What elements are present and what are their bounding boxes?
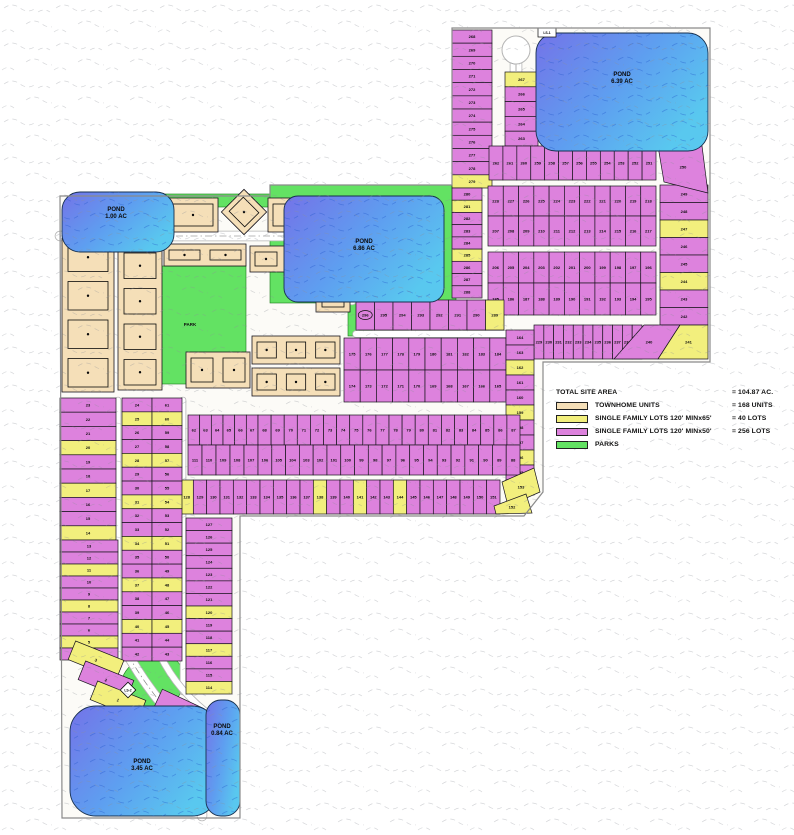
lot-number: 274 <box>469 113 476 118</box>
lot-number: 124 <box>206 560 213 565</box>
lot-number: 292 <box>436 313 443 318</box>
lot-number: 287 <box>464 277 471 282</box>
lot-number: 256 <box>576 161 583 166</box>
lot-number: 37 <box>135 582 140 587</box>
lot-number: 108 <box>234 458 241 463</box>
lot-number: 88 <box>511 458 516 463</box>
lot-number: 24 <box>135 402 140 407</box>
lot-number: 78 <box>393 428 398 433</box>
lot-number: 212 <box>569 229 576 234</box>
lot-number: 205 <box>508 265 515 270</box>
lot-number: 234 <box>585 340 592 345</box>
townhome-unit-dot <box>139 300 141 302</box>
lot-number: 21 <box>86 431 91 436</box>
legend-item: PARKS <box>556 438 794 451</box>
lot-number: 174 <box>349 384 356 389</box>
lot-number: 232 <box>565 340 572 345</box>
lot-number: 182 <box>462 352 469 357</box>
lot-number: 91 <box>470 458 475 463</box>
lot-number: 66 <box>238 428 243 433</box>
lot-number: 131 <box>223 495 230 500</box>
lot-number: 165 <box>495 384 502 389</box>
lot-number: 31 <box>135 499 140 504</box>
pond-084-label: POND0.84 AC <box>211 724 233 737</box>
lot-number: 18 <box>86 474 91 479</box>
townhome-unit-dot <box>295 349 297 351</box>
lot-number: 171 <box>397 384 404 389</box>
lot-number: 177 <box>381 352 388 357</box>
legend-item-label: TOWNHOME UNITS <box>595 402 732 409</box>
lot-number: 228 <box>492 199 499 204</box>
townhome-unit-dot <box>324 349 326 351</box>
lot-number: 141 <box>357 495 364 500</box>
lot-number: 160 <box>517 395 524 400</box>
lot-number: 231 <box>555 340 562 345</box>
lot-number: 276 <box>469 139 476 144</box>
lot-number: 265 <box>518 107 525 112</box>
lot-number: 241 <box>685 340 692 345</box>
site-plan: 2682692702712722732742752762772782792802… <box>0 0 794 835</box>
lot-number: 277 <box>469 153 476 158</box>
lot-number: 270 <box>469 60 476 65</box>
lot-number: 162 <box>517 365 524 370</box>
lot-number: 183 <box>478 352 485 357</box>
legend-item: SINGLE FAMILY LOTS 120' MINx65'= 40 LOTS <box>556 412 794 425</box>
lot-number: 223 <box>569 199 576 204</box>
lot-number: 290 <box>473 313 480 318</box>
legend-swatch-single_family_65 <box>556 415 588 423</box>
lot-number: 184 <box>495 352 502 357</box>
lot-number: 100 <box>344 458 351 463</box>
pond-100-label: POND1.00 AC <box>105 207 127 220</box>
lot-number: 178 <box>397 352 404 357</box>
lot-number: 32 <box>135 513 140 518</box>
lot-number: 275 <box>469 126 476 131</box>
lot-number: 128 <box>183 495 190 500</box>
lot-number: 65 <box>227 428 232 433</box>
lot-number: 109 <box>220 458 227 463</box>
lot-number: 68 <box>262 428 267 433</box>
lot-number: 163 <box>517 350 524 355</box>
lot-number: 133 <box>250 495 257 500</box>
lot-number: 90 <box>483 458 488 463</box>
townhome-unit-dot <box>324 381 326 383</box>
lot-number: 248 <box>681 209 688 214</box>
lot-number: 263 <box>518 136 525 141</box>
lot-number: 119 <box>206 622 213 627</box>
lot-number: 114 <box>206 685 213 690</box>
lot-number: 243 <box>681 296 688 301</box>
legend-item-label: SINGLE FAMILY LOTS 120' MINx50' <box>595 428 732 435</box>
lot-number: 105 <box>275 458 282 463</box>
lot-number: 193 <box>614 297 621 302</box>
lot-number: 269 <box>469 47 476 52</box>
lot-number: 98 <box>373 458 378 463</box>
lot-number: 75 <box>354 428 359 433</box>
lot-number: 140 <box>343 495 350 500</box>
pond-639-texture <box>536 33 708 151</box>
lot-number: 25 <box>135 416 140 421</box>
townhome-unit-dot <box>139 371 141 373</box>
lot-number: 50 <box>165 555 170 560</box>
lot-number: 38 <box>135 596 140 601</box>
lot-number: 245 <box>681 261 688 266</box>
lot-number: 285 <box>464 253 471 258</box>
lot-number: 188 <box>538 297 545 302</box>
lot-number: 251 <box>646 161 653 166</box>
lot-number: 210 <box>538 229 545 234</box>
lot-number: 149 <box>463 495 470 500</box>
lot-number: 186 <box>508 297 515 302</box>
lot-number: 221 <box>599 199 606 204</box>
lot-number: 101 <box>330 458 337 463</box>
lot-number: 222 <box>584 199 591 204</box>
lot-number: 216 <box>630 229 637 234</box>
lot-number: 249 <box>681 191 688 196</box>
lot-number: 57 <box>165 458 170 463</box>
lot-number: 28 <box>135 458 140 463</box>
lot-number: 130 <box>210 495 217 500</box>
lot-number: 33 <box>135 527 140 532</box>
lot-number: 206 <box>492 265 499 270</box>
lot-number: 81 <box>433 428 438 433</box>
lot-number: 191 <box>584 297 591 302</box>
lot-number: 190 <box>569 297 576 302</box>
lot-number: 95 <box>414 458 419 463</box>
lot-number: 76 <box>367 428 372 433</box>
lot-number: 192 <box>599 297 606 302</box>
lot-number: 153 <box>518 485 525 490</box>
lot-number: 272 <box>469 87 476 92</box>
lot-number: 107 <box>248 458 255 463</box>
lot-number: 144 <box>397 495 404 500</box>
lot-number: 252 <box>632 161 639 166</box>
lot-number: 196 <box>645 265 652 270</box>
lot-number: 111 <box>192 458 199 463</box>
lot-number: 286 <box>464 265 471 270</box>
lot-number: 48 <box>165 582 170 587</box>
lot-number: 106 <box>262 458 269 463</box>
lot-number: 240 <box>646 340 653 345</box>
lot-number: 145 <box>410 495 417 500</box>
lot-number: 12 <box>87 556 92 561</box>
lot-number: 61 <box>165 402 170 407</box>
lot-number: 242 <box>681 314 688 319</box>
lot-number: 197 <box>630 265 637 270</box>
lot-number: 199 <box>599 265 606 270</box>
lot-number: 80 <box>420 428 425 433</box>
lot-number: 280 <box>464 192 471 197</box>
lot-number: 143 <box>383 495 390 500</box>
lot-number: 136 <box>290 495 297 500</box>
lot-number: 217 <box>645 229 652 234</box>
legend-item-value: = 40 LOTS <box>732 415 794 422</box>
lot-number: 218 <box>645 199 652 204</box>
legend-title: TOTAL SITE AREA <box>556 389 732 396</box>
lot-number: 36 <box>135 569 140 574</box>
lot-number: 159 <box>517 410 524 415</box>
lot-number: 161 <box>517 380 524 385</box>
lot-number: 122 <box>206 585 213 590</box>
lot-number: 189 <box>553 297 560 302</box>
lot-number: 123 <box>206 572 213 577</box>
lot-number: 127 <box>206 522 213 527</box>
lot-number: 247 <box>681 226 688 231</box>
pond-686-label: POND6.86 AC <box>353 239 375 252</box>
lot-number: 211 <box>554 229 561 234</box>
lot-number: 264 <box>518 121 525 126</box>
lot-number: 289 <box>491 313 498 318</box>
lot-number: 213 <box>584 229 591 234</box>
lot-number: 22 <box>86 417 91 422</box>
legend-item: TOWNHOME UNITS= 168 UNITS <box>556 399 794 412</box>
lot-number: 226 <box>523 199 530 204</box>
lot-number: 209 <box>523 229 530 234</box>
lot-number: 139 <box>330 495 337 500</box>
lot-number: 295 <box>380 313 387 318</box>
lot-number: 23 <box>86 403 91 408</box>
townhome-unit-dot <box>201 369 203 371</box>
pond-100-texture <box>62 192 174 252</box>
lot-number: 244 <box>681 279 688 284</box>
lot-number: 30 <box>135 485 140 490</box>
lot-number: 96 <box>401 458 406 463</box>
lot-number: 62 <box>192 428 197 433</box>
lot-number: 60 <box>165 416 170 421</box>
lot-number: 200 <box>584 265 591 270</box>
lot-number: 63 <box>203 428 208 433</box>
pond-639-label: POND6.39 AC <box>611 72 633 85</box>
lot-number: 254 <box>604 161 611 166</box>
lot-number: 39 <box>135 610 140 615</box>
lot-number: 132 <box>237 495 244 500</box>
lot-number: 55 <box>165 485 170 490</box>
lot-number: 64 <box>215 428 220 433</box>
lot-number: 135 <box>277 495 284 500</box>
lot-number: 281 <box>464 204 471 209</box>
lot-number: 207 <box>492 229 499 234</box>
lot-number: 40 <box>135 624 140 629</box>
lot-number: 79 <box>406 428 411 433</box>
lot-number: 166 <box>478 384 485 389</box>
lot-number: 126 <box>206 534 213 539</box>
townhome-unit-dot <box>224 254 226 256</box>
lot-number: 294 <box>399 313 406 318</box>
lot-number: 92 <box>456 458 461 463</box>
lot-number: 27 <box>135 444 140 449</box>
townhome-unit-dot <box>265 258 267 260</box>
lot-number: 284 <box>464 241 471 246</box>
lot-number: 172 <box>381 384 388 389</box>
lot-number: 59 <box>165 430 170 435</box>
lot-number: 262 <box>493 161 500 166</box>
lot-number: 229 <box>536 340 543 345</box>
lot-number: 56 <box>165 472 170 477</box>
lot-number: 208 <box>508 229 515 234</box>
lot-number: 129 <box>197 495 204 500</box>
legend: TOTAL SITE AREA = 104.87 AC. TOWNHOME UN… <box>556 386 794 451</box>
lot-number: 147 <box>437 495 444 500</box>
townhome-unit-dot <box>87 256 89 258</box>
lot-number: 261 <box>507 161 514 166</box>
lift-station-label: LS-1 <box>543 31 550 35</box>
townhome-unit-dot <box>295 381 297 383</box>
lot-number: 19 <box>86 459 91 464</box>
lot-number: 187 <box>523 297 530 302</box>
lot-number: 258 <box>548 161 555 166</box>
lot-number: 67 <box>250 428 255 433</box>
lot-number: 53 <box>165 513 170 518</box>
lot-number: 45 <box>165 624 170 629</box>
lot-number: 84 <box>472 428 477 433</box>
lot-number: 15 <box>86 516 91 521</box>
lot-number: 138 <box>317 495 324 500</box>
lot-number: 194 <box>630 297 637 302</box>
lot-number: 198 <box>614 265 621 270</box>
legend-title-value: = 104.87 AC. <box>732 389 794 396</box>
lot-number: 204 <box>523 265 530 270</box>
legend-item-label: SINGLE FAMILY LOTS 120' MINx65' <box>595 415 732 422</box>
lot-number: 82 <box>446 428 451 433</box>
lot-number: 74 <box>341 428 346 433</box>
lot-number: 246 <box>681 244 688 249</box>
lot-number: 255 <box>590 161 597 166</box>
lot-number: 42 <box>135 652 140 657</box>
lot-number: 26 <box>135 430 140 435</box>
lot-number: 89 <box>497 458 502 463</box>
lot-number: 271 <box>469 74 476 79</box>
lot-number: 103 <box>303 458 310 463</box>
lot-number: 214 <box>599 229 606 234</box>
legend-item-label: PARKS <box>595 441 732 448</box>
lot-number: 83 <box>459 428 464 433</box>
lot-number: 137 <box>303 495 310 500</box>
lot-number: 220 <box>614 199 621 204</box>
lot-number: 151 <box>490 495 497 500</box>
lot-number: 260 <box>520 161 527 166</box>
lot-number: 134 <box>263 495 270 500</box>
lot-number: 116 <box>206 660 213 665</box>
lot-number: 176 <box>365 352 372 357</box>
lot-number: 291 <box>454 313 461 318</box>
lot-number: 167 <box>462 384 469 389</box>
lot-number: 283 <box>464 228 471 233</box>
lot-number: 146 <box>423 495 430 500</box>
lot-number: 99 <box>359 458 364 463</box>
lot-number: 29 <box>135 472 140 477</box>
lot-number: 202 <box>553 265 560 270</box>
lot-number: 235 <box>594 340 601 345</box>
lot-number: 181 <box>446 352 453 357</box>
townhome-unit-dot <box>192 214 194 216</box>
lot-number: 49 <box>165 569 170 574</box>
pond-345-label: POND3.45 AC <box>131 759 153 772</box>
lot-number: 117 <box>206 648 213 653</box>
park-label: PARK <box>184 322 197 327</box>
lot-number: 94 <box>428 458 433 463</box>
lot-number: 14 <box>86 530 91 535</box>
lot-number: 219 <box>630 199 637 204</box>
cul-de-sac <box>502 36 530 64</box>
lot-number: 273 <box>469 100 476 105</box>
lot-number: 195 <box>645 297 652 302</box>
lot-number: 46 <box>165 610 170 615</box>
lot-number: 253 <box>618 161 625 166</box>
townhome-unit-dot <box>87 295 89 297</box>
lot-number: 148 <box>450 495 457 500</box>
lot-number: 288 <box>464 289 471 294</box>
townhome-unit-dot <box>183 254 185 256</box>
lot-number: 86 <box>498 428 503 433</box>
lot-number: 152 <box>509 504 516 509</box>
lot-number: 44 <box>165 638 170 643</box>
lot-number: 164 <box>517 335 524 340</box>
townhome-unit-dot <box>139 265 141 267</box>
lot-number: 20 <box>86 445 91 450</box>
lot-number: 268 <box>469 34 476 39</box>
lot-number: 170 <box>414 384 421 389</box>
lot-number: 150 <box>477 495 484 500</box>
lot-number: 278 <box>469 166 476 171</box>
lot-number: 125 <box>206 547 213 552</box>
lot-number: 73 <box>328 428 333 433</box>
lot-number: 142 <box>370 495 377 500</box>
lot-number: 180 <box>430 352 437 357</box>
lot-number: 58 <box>165 444 170 449</box>
lot-number: 104 <box>289 458 296 463</box>
lot-number: 71 <box>302 428 307 433</box>
lot-number: 266 <box>518 92 525 97</box>
townhome-unit-dot <box>265 381 267 383</box>
lot-number: 259 <box>534 161 541 166</box>
lot-number: 47 <box>165 596 170 601</box>
lot-number: 34 <box>135 541 140 546</box>
lot-number: 169 <box>430 384 437 389</box>
townhome-unit-dot <box>87 372 89 374</box>
legend-swatch-single_family_50 <box>556 428 588 436</box>
lot-number: 52 <box>165 527 170 532</box>
lift-station-label: LS-2 <box>124 688 131 692</box>
lot-number: 257 <box>562 161 569 166</box>
lot-number: 215 <box>614 229 621 234</box>
lot-number: 121 <box>206 597 213 602</box>
lot-number: 16 <box>86 502 91 507</box>
lot-number: 237 <box>614 340 621 345</box>
pond-084-texture <box>206 700 240 816</box>
lot-number: 110 <box>206 458 213 463</box>
lot-number: 225 <box>538 199 545 204</box>
legend-swatch-park <box>556 441 588 449</box>
lot-number: 72 <box>315 428 320 433</box>
lot-number: 115 <box>206 673 213 678</box>
townhome-unit-dot <box>87 333 89 335</box>
legend-swatch-townhome <box>556 402 588 410</box>
lot-number: 250 <box>680 164 687 169</box>
lot-number: 279 <box>469 179 476 184</box>
lot-number: 201 <box>569 265 576 270</box>
lot-number: 168 <box>446 384 453 389</box>
lot-number: 43 <box>165 652 170 657</box>
lot-number: 233 <box>575 340 582 345</box>
lot-number: 179 <box>414 352 421 357</box>
lot-number: 10 <box>87 580 92 585</box>
lot-number: 230 <box>545 340 552 345</box>
lot-number: 224 <box>553 199 560 204</box>
lot-number: 173 <box>365 384 372 389</box>
lot-number: 236 <box>604 340 611 345</box>
legend-title-row: TOTAL SITE AREA = 104.87 AC. <box>556 386 794 399</box>
lot-number: 282 <box>464 216 471 221</box>
